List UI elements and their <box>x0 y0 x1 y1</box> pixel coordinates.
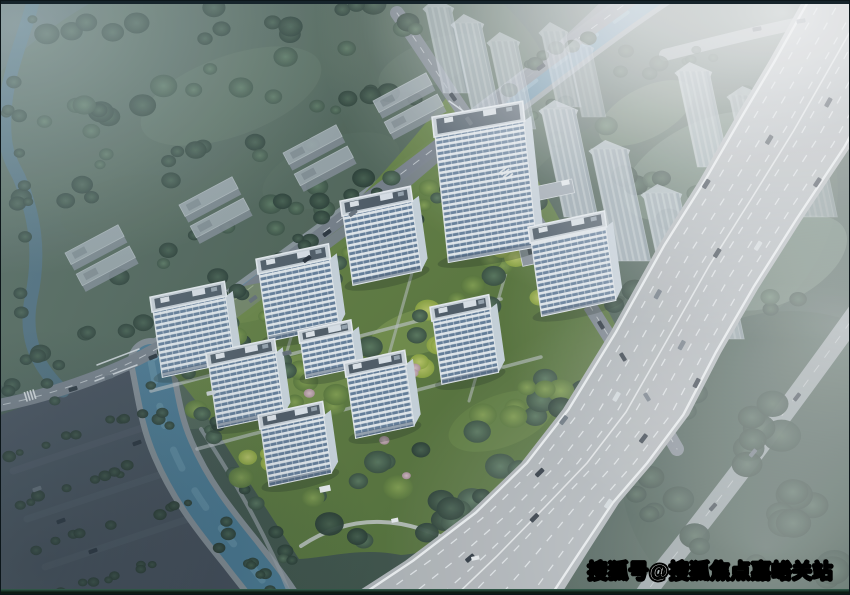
frame-border-bottom <box>1 589 849 594</box>
frame-border-top <box>1 1 849 4</box>
aerial-rendering: 搜狐号@搜狐焦点嘉峪关站 <box>0 0 850 595</box>
watermark-text: 搜狐号@搜狐焦点嘉峪关站 <box>587 555 833 584</box>
atmosphere-haze-layer <box>1 1 850 595</box>
scene-svg <box>1 1 850 595</box>
